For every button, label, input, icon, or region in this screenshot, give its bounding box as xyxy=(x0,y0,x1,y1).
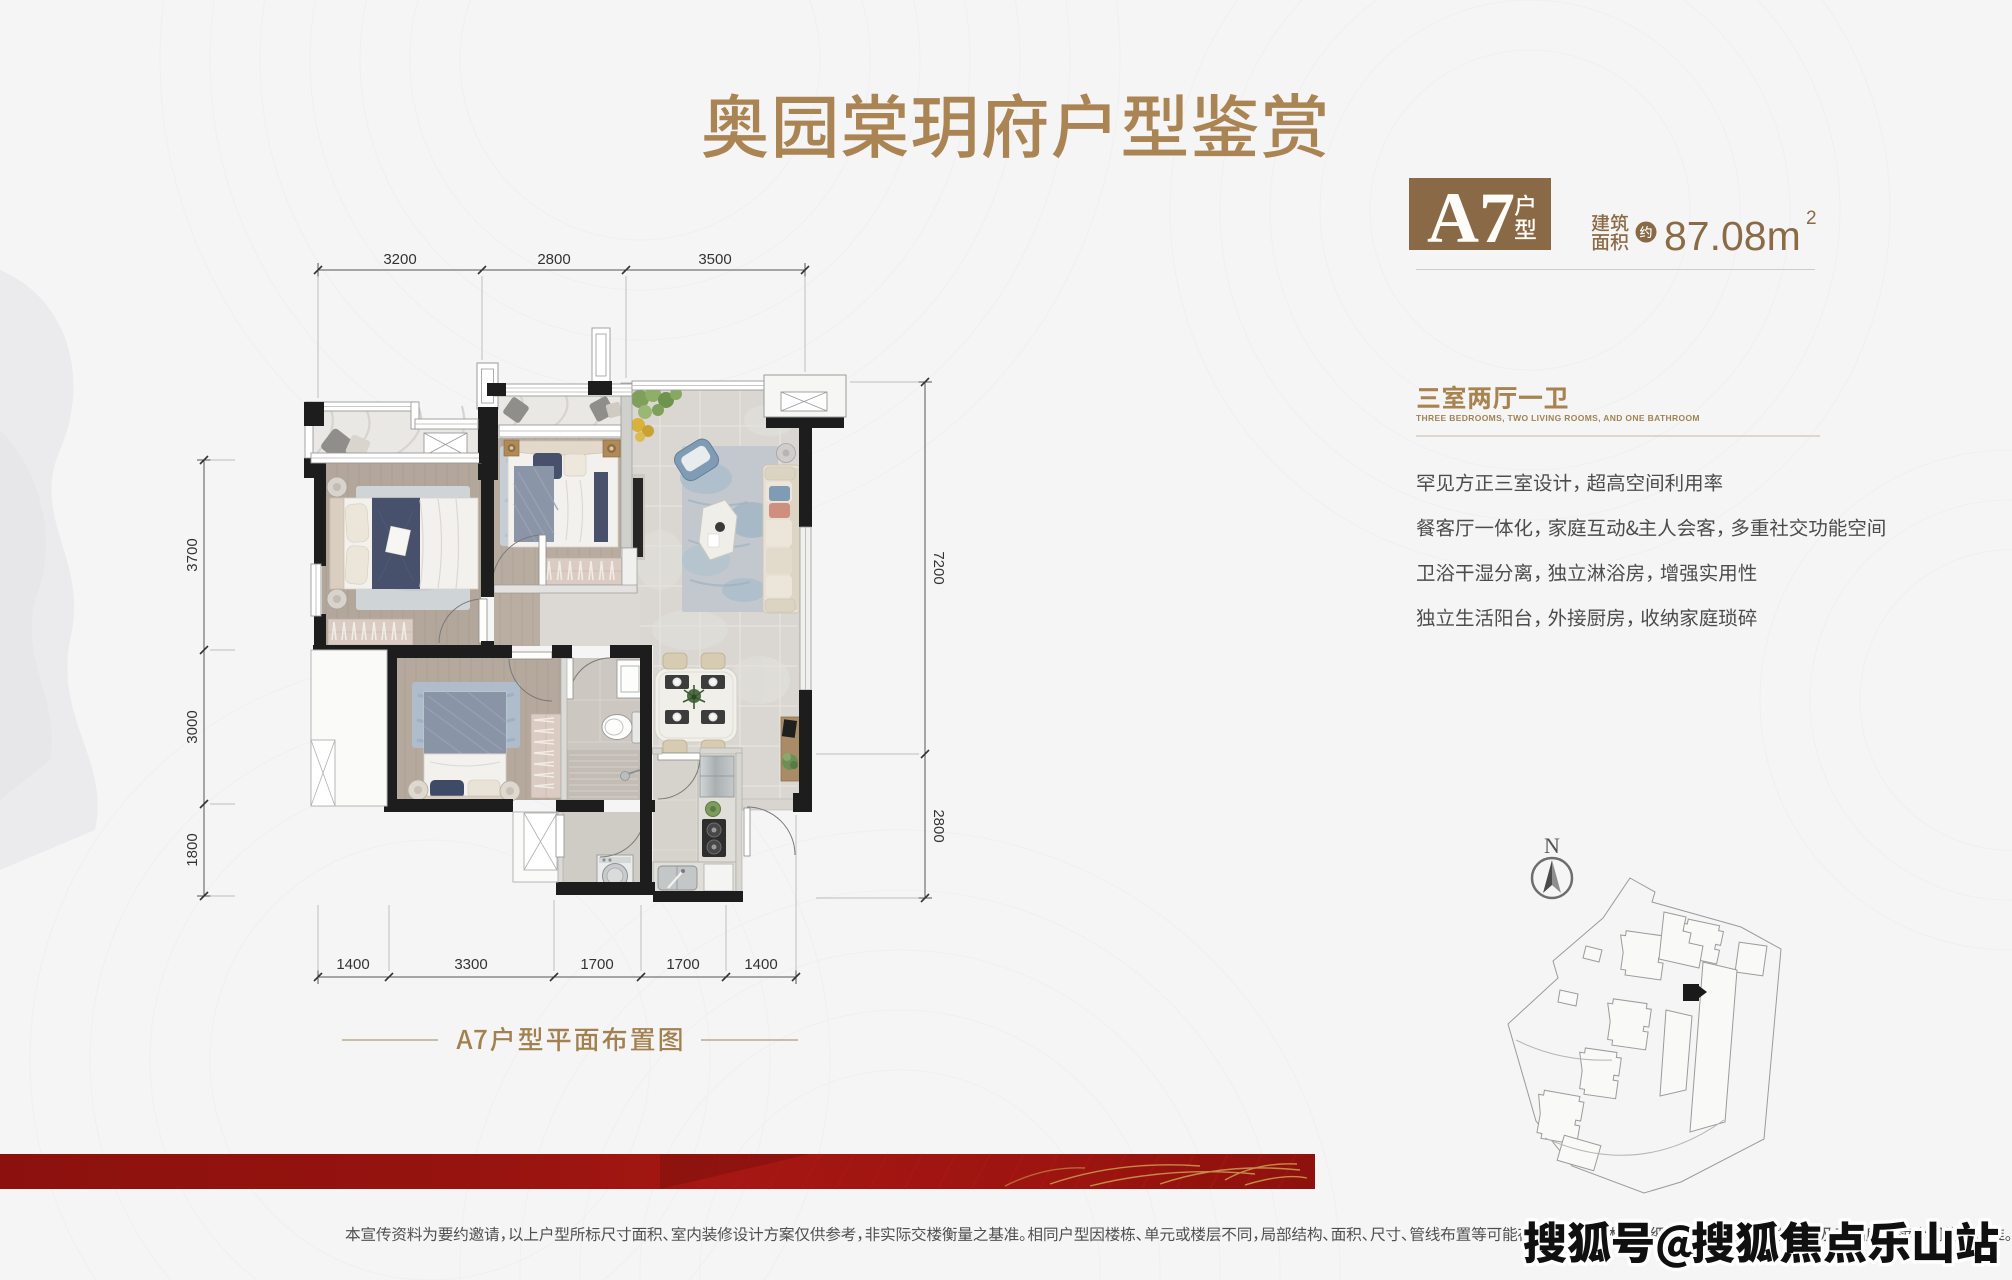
svg-text:7200: 7200 xyxy=(930,551,947,584)
svg-text:3500: 3500 xyxy=(698,251,731,268)
svg-text:2800: 2800 xyxy=(930,809,947,842)
svg-text:1400: 1400 xyxy=(336,956,369,973)
svg-text:1700: 1700 xyxy=(666,956,699,973)
svg-text:THREE BEDROOMS, TWO LIVING ROO: THREE BEDROOMS, TWO LIVING ROOMS, AND ON… xyxy=(1416,413,1700,423)
svg-text:3300: 3300 xyxy=(454,956,487,973)
svg-text:3200: 3200 xyxy=(383,251,416,268)
svg-text:3000: 3000 xyxy=(184,710,201,743)
svg-text:A7: A7 xyxy=(1427,178,1515,258)
svg-text:N: N xyxy=(1544,833,1560,858)
svg-text:1400: 1400 xyxy=(744,956,777,973)
svg-text:87.08m: 87.08m xyxy=(1664,213,1801,259)
svg-text:1800: 1800 xyxy=(184,833,201,866)
svg-text:2800: 2800 xyxy=(537,251,570,268)
svg-text:1700: 1700 xyxy=(580,956,613,973)
svg-text:2: 2 xyxy=(1806,208,1817,229)
svg-text:3700: 3700 xyxy=(184,538,201,571)
